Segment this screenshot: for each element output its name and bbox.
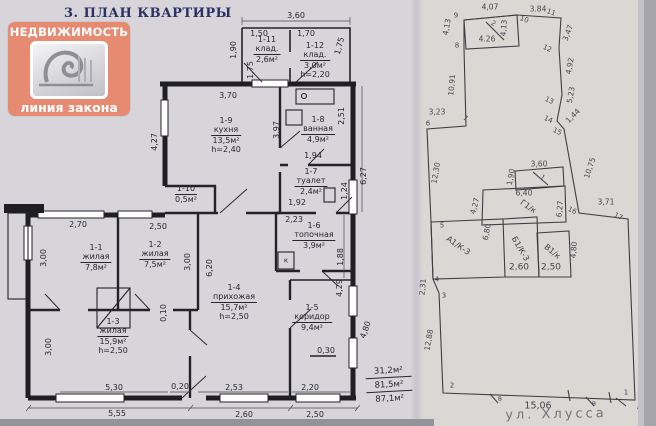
light-walls xyxy=(290,280,353,356)
building-a1k3 xyxy=(431,219,505,279)
sketch-marks xyxy=(486,22,626,406)
shed-outline xyxy=(464,15,519,49)
closet-walls xyxy=(242,28,350,82)
area-totals: 31,2м² 81,5м² 87,1м² xyxy=(365,363,413,406)
street-name: ул. Хлусса xyxy=(488,406,624,423)
interior-walls xyxy=(28,84,353,398)
building-b1k3 xyxy=(503,217,539,277)
land-plot-drawing xyxy=(420,0,656,426)
scanned-floor-plan-page: 3. ПЛАН КВАРТИРЫ НЕДВИЖИМОСТЬ линия зако… xyxy=(0,0,656,426)
scan-edge xyxy=(644,0,656,426)
building-v1k xyxy=(537,231,571,277)
floor-plan-drawing xyxy=(0,0,420,426)
total-area: 87,1м² xyxy=(366,391,413,406)
plot-boundary xyxy=(427,15,635,400)
windows xyxy=(24,80,357,402)
scan-bottom-edge xyxy=(0,419,434,426)
exterior-walls xyxy=(28,84,356,398)
